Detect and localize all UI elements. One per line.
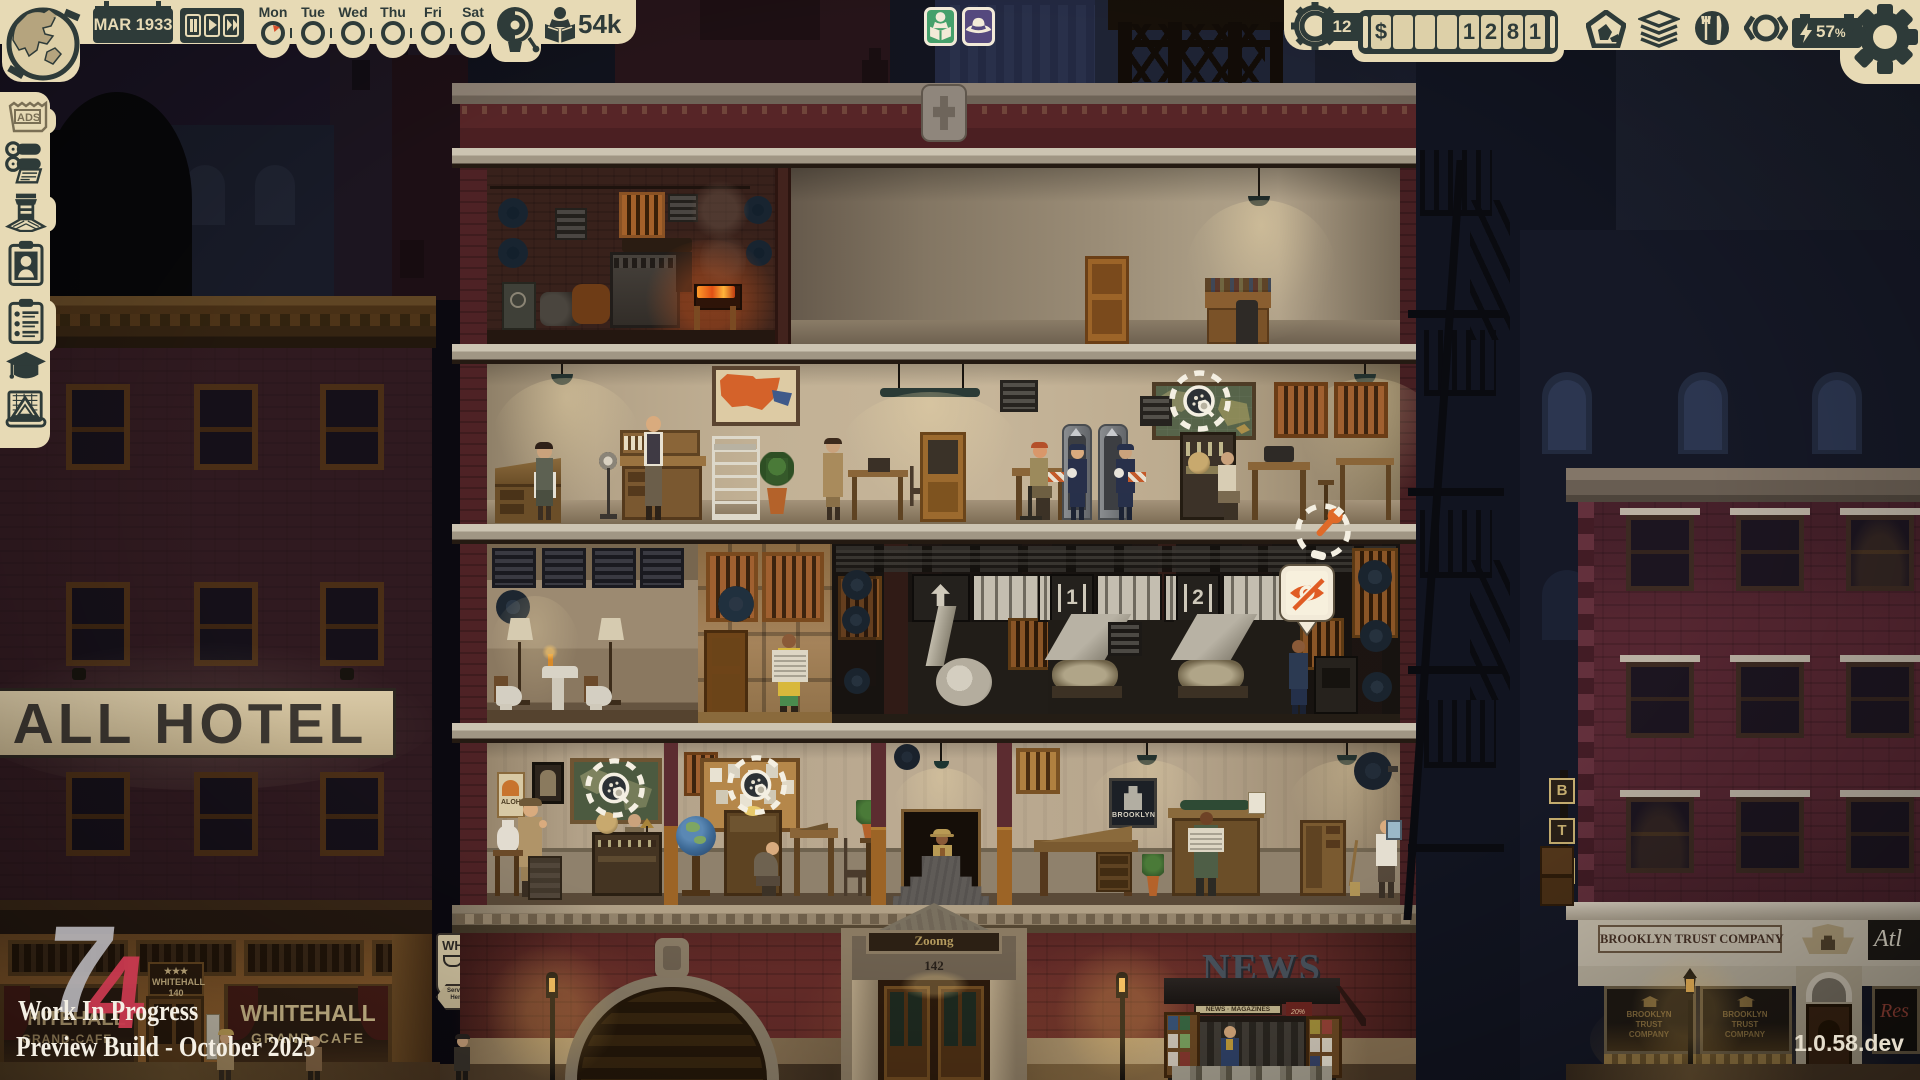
svg-text:ADS: ADS [17, 112, 40, 124]
